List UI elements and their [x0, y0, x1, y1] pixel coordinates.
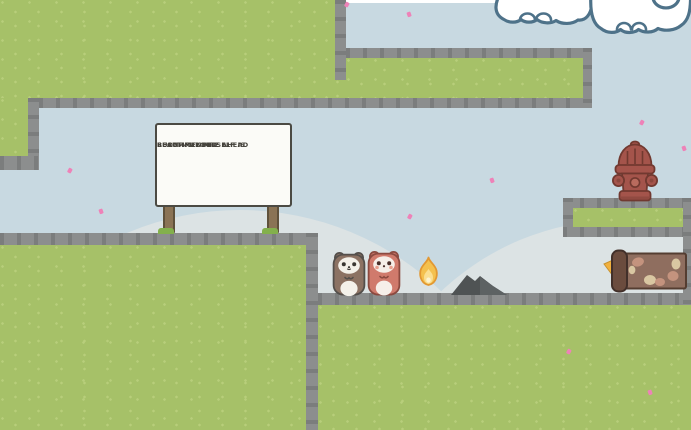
confetti-speck	[98, 209, 103, 214]
platform-bottomleft-grass	[0, 245, 306, 430]
confetti-speck	[406, 12, 411, 17]
confetti-speck	[489, 178, 494, 183]
platform-upperbar-top-border	[346, 48, 592, 58]
fire-hydrant-icon	[611, 140, 659, 202]
confetti-speck	[67, 167, 72, 173]
confetti-speck	[681, 146, 686, 151]
clouds-icon	[479, 0, 691, 42]
flame-icon	[416, 256, 441, 287]
confetti-speck	[639, 119, 644, 125]
ledge-right-bottom-border	[563, 227, 691, 237]
coal-mound-icon	[450, 271, 508, 295]
platform-bottomright-grass	[318, 305, 691, 430]
gray-hamster-player[interactable]	[332, 251, 366, 296]
log-icon[interactable]	[604, 249, 688, 293]
platform-bottomleft-right-border	[306, 233, 318, 430]
platform-topleft-column-bottom-border	[0, 156, 39, 170]
red-hamster-player[interactable]	[367, 250, 401, 296]
ledge-right-grass	[573, 208, 691, 227]
platform-topleft-bottom-border	[39, 98, 592, 108]
sign-text-line-3: RECOMMENDED	[157, 140, 218, 150]
sign-board: BEAUTIFUL FIRE AHEAD BURNING YOURSELF IS…	[155, 123, 292, 207]
platform-upperbar-grass	[346, 58, 583, 98]
confetti-speck	[344, 1, 349, 7]
platform-topleft-right-border	[335, 0, 346, 80]
grass-tuft-right	[262, 228, 278, 234]
platform-bottomleft-top-border	[0, 233, 318, 245]
platform-upperbar-right-border	[583, 48, 592, 108]
confetti-speck	[407, 213, 412, 219]
game-viewport[interactable]: BEAUTIFUL FIRE AHEAD BURNING YOURSELF IS…	[0, 0, 691, 430]
platform-topleft-grass	[0, 0, 346, 98]
platform-topleft-column-grass	[0, 98, 28, 156]
grass-tuft-left	[158, 228, 174, 234]
